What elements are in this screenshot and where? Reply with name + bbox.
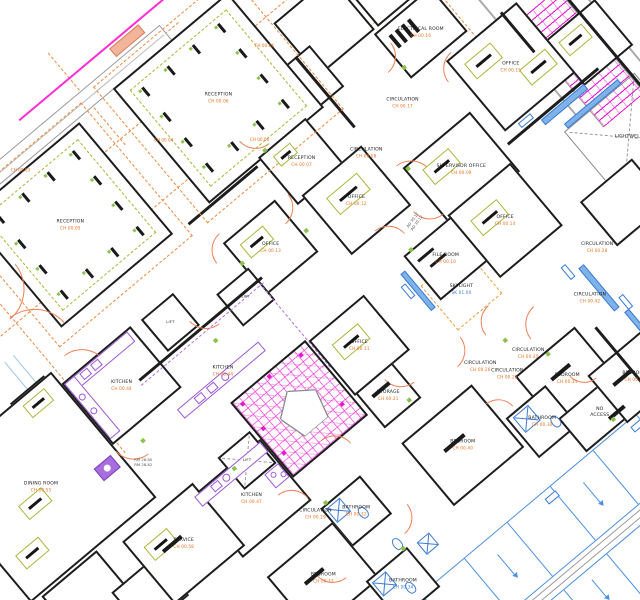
room-name: CIRCULATION (464, 361, 496, 367)
room-code: CH 00.06 (205, 98, 233, 103)
annotation-note: AD 30.12AD 30.12 (406, 212, 424, 232)
room-label-bedroom33: BEDROOMCH 00.33 (311, 572, 336, 583)
room-code: CH 00.42 (574, 298, 606, 303)
room-label-noaccess: NO ACCESS (588, 407, 612, 418)
bay-divider (607, 554, 640, 599)
room-code: CH 00.21 (377, 396, 400, 401)
room-label-circ_a: CIRCULATIONCH 00.17 (386, 97, 418, 108)
room-name: OFFICE (495, 215, 516, 221)
room-name: KITCHEN (111, 380, 132, 386)
floor-plan-canvas: RECEPTIONCH 00.06RECEPTIONCH 00.05RECEPT… (0, 0, 640, 600)
annotation-note: RM 28.80RM 28.82 (134, 458, 152, 467)
room-name: CIRCULATION (574, 293, 606, 299)
room-name: LIFT (241, 295, 249, 300)
room-code: CH 00.08 (350, 153, 382, 158)
room-label-office14: OFFICECH 00.14 (495, 215, 516, 226)
reference-tag (630, 418, 640, 432)
room-name: RECEPTION (288, 156, 316, 162)
flow-arrow-icon (497, 554, 515, 575)
plan-rotated-layer: RECEPTIONCH 00.06RECEPTIONCH 00.05RECEPT… (0, 0, 640, 600)
door-marker-dot (502, 338, 507, 343)
door-marker-dot (213, 338, 218, 343)
room-bathroom34 (366, 547, 441, 600)
door-swing-arc (390, 504, 421, 535)
room-code: CH 00.07 (288, 162, 316, 167)
bay-divider (564, 590, 602, 600)
room-code: CH 00.44 (111, 386, 132, 391)
room-code: SK 01.00 (450, 290, 474, 295)
room-label-bathroom34: BATHROOMCH 00.34 (389, 579, 417, 590)
room-code: CH 00.05 (57, 225, 85, 230)
reference-tag (618, 294, 633, 310)
room-code: CH 00.11 (349, 346, 370, 351)
annotation-line: RM 28.82 (134, 463, 152, 468)
floating-room-code: CH 00.04 (255, 43, 274, 48)
room-label-bathroom32: BATHROOMCH 00.32 (342, 506, 370, 517)
room-label-circ_c: CIRCULATIONCH 00.28 (581, 242, 613, 253)
room-code: CH 00.44 (212, 371, 233, 376)
room-code: CH 00.30 (528, 422, 556, 427)
room-code: CH 00.32 (342, 511, 370, 516)
room-name: BATHROOM (389, 579, 417, 585)
room-label-circ_f: CIRCULATIONCH 00.25 (491, 368, 523, 379)
room-name: LIFT (166, 320, 174, 325)
window-bar (578, 264, 619, 311)
room-code: CH 00.29 (299, 514, 331, 519)
room-code: CH 00.25 (491, 374, 523, 379)
room-name: KITCHEN (241, 493, 262, 499)
room-name: BEDROOM (622, 371, 640, 377)
room-label-bathroom30: BATHROOMCH 00.30 (528, 416, 556, 427)
stair-void (270, 377, 335, 442)
room-label-circ_d: CIRCULATIONCH 00.42 (574, 293, 606, 304)
room-code: CH 00.13 (260, 248, 281, 253)
room-label-office15: OFFICECH 00.15 (500, 61, 521, 72)
flow-arrow-icon (583, 482, 601, 503)
flow-arrow-icon (591, 579, 606, 597)
floating-room-code: CH 00.04 (154, 138, 173, 143)
room-name: ELECTRICAL ROOM (398, 27, 444, 33)
room-code: CH 00.10 (432, 259, 459, 264)
room-label-bedroom_edge: BEDROOMCH 00.36 (622, 371, 640, 382)
room-name: BEDROOM (311, 572, 336, 578)
room-code: CH 00.31 (555, 379, 580, 384)
room-code: CH 00.16 (398, 33, 444, 38)
room-code: CH 00.36 (622, 377, 640, 382)
room-name: OFFICE (349, 340, 370, 346)
room-code: CH 00.17 (386, 103, 418, 108)
room-name: BEDROOM (555, 373, 580, 379)
room-label-office11: OFFICECH 00.11 (349, 340, 370, 351)
room-code: CH 00.33 (311, 578, 336, 583)
room-code: CH 00.34 (389, 584, 417, 589)
room-code: CH 00.47 (241, 499, 262, 504)
room-name: SKYLIGHT (450, 284, 474, 290)
room-label-lightwell: LIGHTWELL (615, 135, 640, 141)
room-label-lift1: LIFT (166, 320, 174, 325)
room-code: CH 00.28 (581, 248, 613, 253)
reference-tag (545, 490, 560, 504)
room-label-circ_g: CIRCULATIONCH 00.45 (512, 348, 544, 359)
room-label-kitchen_a: KITCHENCH 00.44 (212, 366, 233, 377)
room-name: RECEPTION (57, 219, 85, 225)
room-label-storage: STORAGECH 00.21 (377, 390, 400, 401)
room-label-office12: OFFICECH 00.12 (346, 195, 367, 206)
room-name: BATHROOM (528, 416, 556, 422)
door-marker-dot (140, 438, 145, 443)
room-label-bedroom31: BEDROOMCH 00.31 (555, 373, 580, 384)
room-name: NO ACCESS (588, 407, 612, 418)
room-name: OFFICE (260, 242, 281, 248)
room-code: CH 00.40 (450, 445, 475, 450)
shower-icon (417, 532, 440, 555)
room-name: CIRCULATION (350, 147, 382, 153)
room-code: CH 00.45 (512, 354, 544, 359)
bay-divider (464, 558, 510, 600)
room-label-office13: OFFICECH 00.13 (260, 242, 281, 253)
room-label-circ_h: CIRCULATIONCH 00.29 (299, 508, 331, 519)
room-name: CIRCULATION (386, 97, 418, 103)
room-name: OFFICE (346, 195, 367, 201)
room-name: BEDROOM (450, 440, 475, 446)
room-label-kitchen_c: KITCHENCH 00.47 (241, 493, 262, 504)
room-code: CH 00.12 (346, 201, 367, 206)
room-name: CIRCULATION (581, 242, 613, 248)
room-label-supervisor: SUPERVISOR OFFICECH 00.09 (437, 164, 487, 175)
room-name: CIRCULATION (299, 508, 331, 514)
room-label-kitchen_b: KITCHENCH 00.44 (111, 380, 132, 391)
room-label-electrical: ELECTRICAL ROOMCH 00.16 (398, 27, 444, 38)
room-name: CIRCULATION (491, 368, 523, 374)
room-label-lift3: LIFT (243, 458, 251, 463)
room-label-circ_b: CIRCULATIONCH 00.08 (350, 147, 382, 158)
room-label-reception3: RECEPTIONCH 00.07 (288, 156, 316, 167)
room-code: CH 00.09 (437, 170, 487, 175)
door-marker-dot (303, 228, 308, 233)
floating-room-code: CH 00.03 (11, 168, 30, 173)
room-name: STORAGE (377, 390, 400, 396)
room-name: FILE ROOM (432, 253, 459, 259)
reference-tag (561, 264, 576, 280)
room-code: CH 00.58 (173, 544, 194, 549)
floating-room-code: CH 00.06 (250, 137, 269, 142)
room-label-dining: DINING ROOMCH 00.55 (24, 482, 58, 493)
room-name: LIGHTWELL (615, 135, 640, 141)
room-code: CH 00.55 (24, 487, 58, 492)
room-label-skylight: SKYLIGHTSK 01.00 (450, 284, 474, 295)
room-name: KITCHEN (212, 366, 233, 372)
room-code: CH 00.14 (495, 221, 516, 226)
room-label-reception2: RECEPTIONCH 00.05 (57, 219, 85, 230)
room-name: BATHROOM (342, 506, 370, 512)
room-name: SUPERVISOR OFFICE (437, 164, 487, 170)
room-name: OFFICE (500, 61, 521, 67)
room-name: LIFT (243, 458, 251, 463)
room-label-fileroom: FILE ROOMCH 00.10 (432, 253, 459, 264)
room-name: CIRCULATION (512, 348, 544, 354)
room-name: RECEPTION (205, 93, 233, 99)
bay-divider (507, 522, 553, 576)
room-name: SERVICE (173, 538, 194, 544)
room-label-lift2: LIFT (241, 295, 249, 300)
room-label-service: SERVICECH 00.58 (173, 538, 194, 549)
room-code: CH 00.15 (500, 67, 521, 72)
room-label-reception1: RECEPTIONCH 00.06 (205, 93, 233, 104)
door-swing-arc (515, 306, 549, 340)
room-label-bedroom40: BEDROOMCH 00.40 (450, 440, 475, 451)
room-name: DINING ROOM (24, 482, 58, 488)
bay-divider (593, 450, 639, 504)
